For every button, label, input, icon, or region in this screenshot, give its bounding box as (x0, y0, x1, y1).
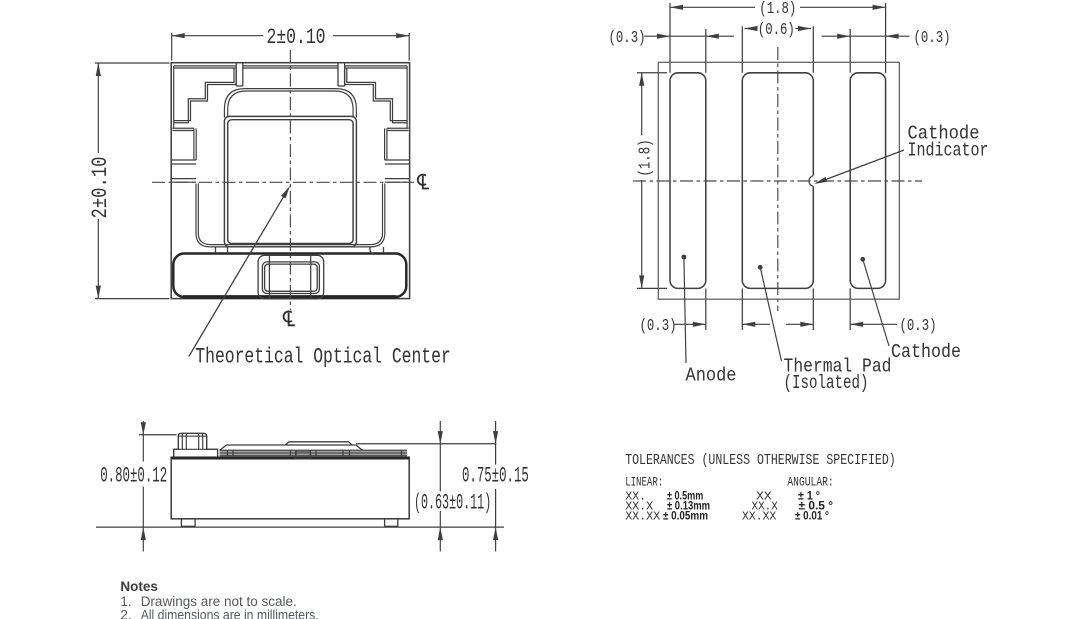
svg-text:TOLERANCES (UNLESS OTHERWISE S: TOLERANCES (UNLESS OTHERWISE SPECIFIED) (625, 453, 896, 469)
svg-text:(0.63±0.11): (0.63±0.11) (414, 490, 491, 515)
svg-text:Indicator: Indicator (908, 140, 989, 162)
svg-text:(Isolated): (Isolated) (784, 372, 869, 394)
svg-text:0.75±0.15: 0.75±0.15 (462, 463, 529, 488)
svg-text:± 0.01 °: ± 0.01 ° (795, 510, 829, 522)
svg-text:(0.3): (0.3) (640, 317, 677, 336)
svg-text:Notes: Notes (120, 579, 158, 594)
svg-text:XX.XX: XX.XX (742, 509, 777, 523)
svg-text:XX.XX: XX.XX (625, 509, 661, 523)
svg-text:(0.6): (0.6) (758, 21, 795, 40)
svg-text:Cathode: Cathode (891, 341, 961, 363)
svg-text:Anode: Anode (686, 365, 737, 387)
svg-text:2±0.10: 2±0.10 (267, 25, 326, 50)
svg-text:2.: 2. (120, 607, 131, 619)
svg-text:LINEAR:: LINEAR: (625, 475, 663, 489)
svg-text:All dimensions are in millimet: All dimensions are in millimeters. (141, 607, 319, 619)
svg-text:(0.3): (0.3) (609, 29, 646, 48)
svg-text:2±0.10: 2±0.10 (88, 157, 113, 219)
svg-text:ANGULAR:: ANGULAR: (787, 475, 833, 489)
svg-text:(0.3): (0.3) (900, 317, 937, 336)
svg-text:Theoretical Optical Center: Theoretical Optical Center (195, 345, 450, 370)
svg-text:(1.8): (1.8) (759, 0, 796, 19)
svg-text:0.80±0.12: 0.80±0.12 (100, 463, 167, 488)
svg-text:(1.8): (1.8) (636, 140, 655, 177)
svg-text:(0.3): (0.3) (914, 29, 951, 48)
svg-text:± 0.05mm: ± 0.05mm (663, 510, 708, 522)
